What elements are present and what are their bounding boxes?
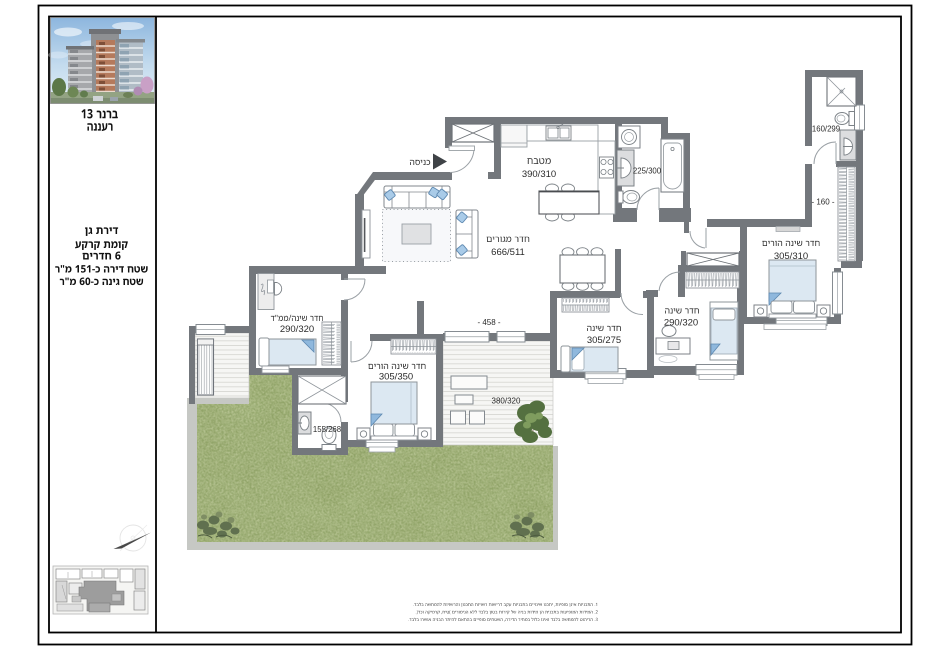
svg-text:305/275: 305/275 [587,335,621,346]
svg-text:- 458 -: - 458 - [477,318,500,327]
svg-text:380/320: 380/320 [492,397,521,406]
svg-text:- 160 -: - 160 - [811,198,834,207]
svg-text:390/310: 390/310 [522,169,556,180]
svg-text:666/511: 666/511 [491,247,525,258]
svg-text:305/350: 305/350 [379,372,413,383]
svg-text:290/320: 290/320 [664,318,698,329]
svg-text:225/300: 225/300 [633,167,662,176]
svg-text:160/299: 160/299 [812,125,840,134]
svg-text:305/310: 305/310 [774,251,808,262]
svg-text:290/320: 290/320 [280,324,314,335]
svg-text:155/268: 155/268 [313,425,341,434]
